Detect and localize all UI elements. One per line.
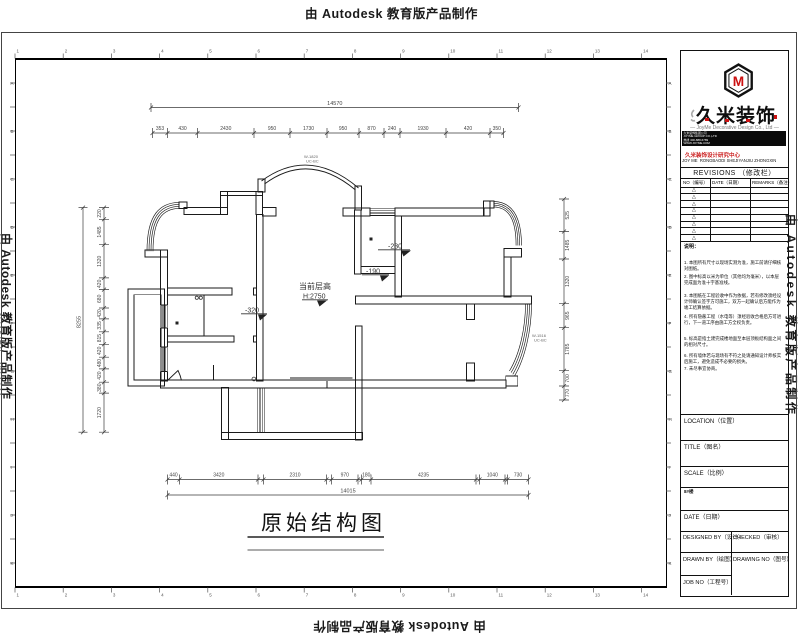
svg-text:11: 11	[499, 593, 504, 598]
svg-text:A: A	[669, 81, 672, 86]
svg-text:14015: 14015	[340, 489, 355, 495]
svg-text:I: I	[669, 465, 670, 470]
svg-text:14: 14	[643, 593, 649, 598]
svg-text:9: 9	[402, 593, 405, 598]
svg-text:353: 353	[156, 126, 165, 132]
svg-text:J: J	[669, 513, 671, 518]
svg-text:1485: 1485	[565, 240, 571, 251]
svg-text:7: 7	[306, 593, 309, 598]
svg-text:E: E	[669, 273, 672, 278]
svg-text:2430: 2430	[220, 126, 231, 132]
svg-text:12: 12	[547, 593, 553, 598]
svg-text:10: 10	[450, 593, 456, 598]
svg-text:6: 6	[258, 49, 261, 54]
svg-text:440: 440	[169, 473, 178, 479]
svg-text:480: 480	[97, 359, 103, 368]
svg-text:J: J	[11, 513, 13, 518]
svg-text:350: 350	[493, 126, 502, 132]
svg-text:B: B	[669, 129, 672, 134]
svg-text:380: 380	[97, 383, 103, 392]
svg-text:3: 3	[113, 49, 116, 54]
svg-text:240: 240	[388, 126, 397, 132]
svg-text:970: 970	[341, 473, 350, 479]
svg-text:3420: 3420	[213, 473, 224, 479]
svg-text:14570: 14570	[327, 101, 342, 107]
svg-text:C: C	[11, 177, 15, 182]
svg-text:335: 335	[97, 321, 103, 330]
svg-text:1320: 1320	[565, 276, 571, 287]
svg-text:原始结构图: 原始结构图	[261, 511, 386, 535]
svg-text:9: 9	[402, 49, 405, 54]
svg-text:5: 5	[209, 49, 212, 54]
svg-text:1730: 1730	[303, 126, 314, 132]
svg-text:F: F	[11, 321, 14, 326]
svg-text:4235: 4235	[418, 473, 429, 479]
svg-text:H: H	[11, 417, 14, 422]
svg-text:700: 700	[565, 374, 571, 383]
svg-text:3: 3	[113, 593, 116, 598]
svg-text:8: 8	[354, 49, 357, 54]
svg-text:I: I	[11, 465, 12, 470]
svg-text:1: 1	[17, 49, 20, 54]
svg-text:2310: 2310	[289, 473, 300, 479]
svg-text:D: D	[669, 225, 673, 230]
svg-text:13: 13	[595, 593, 601, 598]
svg-text:180: 180	[362, 473, 371, 479]
svg-text:220: 220	[97, 209, 103, 218]
svg-text:C: C	[669, 177, 673, 182]
svg-text:770: 770	[565, 389, 571, 398]
svg-text:4: 4	[161, 49, 164, 54]
svg-text:525: 525	[565, 211, 571, 220]
svg-text:965: 965	[565, 311, 571, 320]
svg-text:2: 2	[65, 49, 68, 54]
svg-text:14: 14	[643, 49, 649, 54]
svg-text:950: 950	[339, 126, 348, 132]
svg-text:G: G	[669, 369, 673, 374]
svg-text:430: 430	[178, 126, 187, 132]
svg-text:K: K	[669, 561, 672, 566]
svg-text:7: 7	[306, 49, 309, 54]
svg-text:UC-BC: UC-BC	[306, 159, 319, 164]
svg-text:H: H	[669, 417, 672, 422]
svg-text:1320: 1320	[97, 256, 103, 267]
svg-text:5: 5	[209, 593, 212, 598]
svg-text:A: A	[11, 81, 14, 86]
svg-text:F: F	[669, 321, 672, 326]
svg-text:1485: 1485	[97, 226, 103, 237]
svg-text:420: 420	[97, 309, 103, 318]
svg-text:420: 420	[97, 346, 103, 355]
svg-text:10: 10	[450, 49, 456, 54]
svg-text:UC-BC: UC-BC	[534, 338, 547, 343]
svg-text:870: 870	[367, 126, 376, 132]
svg-text:B: B	[11, 129, 14, 134]
svg-text:12: 12	[547, 49, 553, 54]
svg-text:1720: 1720	[97, 407, 103, 418]
svg-text:420: 420	[97, 371, 103, 380]
svg-text:D: D	[11, 225, 15, 230]
svg-text:M: M	[733, 74, 744, 89]
svg-text:1: 1	[17, 593, 20, 598]
svg-text:G: G	[11, 369, 15, 374]
svg-text:730: 730	[514, 473, 523, 479]
svg-text:8255: 8255	[77, 316, 83, 328]
svg-text:8: 8	[354, 593, 357, 598]
svg-text:1930: 1930	[417, 126, 428, 132]
svg-text:6: 6	[258, 593, 261, 598]
svg-text:13: 13	[595, 49, 601, 54]
svg-text:2: 2	[65, 593, 68, 598]
svg-text:950: 950	[268, 126, 277, 132]
svg-text:815: 815	[97, 334, 103, 343]
svg-text:E: E	[11, 273, 14, 278]
svg-text:4: 4	[161, 593, 164, 598]
svg-text:680: 680	[97, 294, 103, 303]
svg-text:11: 11	[499, 49, 504, 54]
svg-text:当前层高: 当前层高	[299, 281, 331, 291]
svg-text:K: K	[11, 561, 14, 566]
svg-text:420: 420	[97, 279, 103, 288]
svg-text:1785: 1785	[565, 343, 571, 354]
svg-text:420: 420	[464, 126, 473, 132]
svg-text:1040: 1040	[487, 473, 498, 479]
